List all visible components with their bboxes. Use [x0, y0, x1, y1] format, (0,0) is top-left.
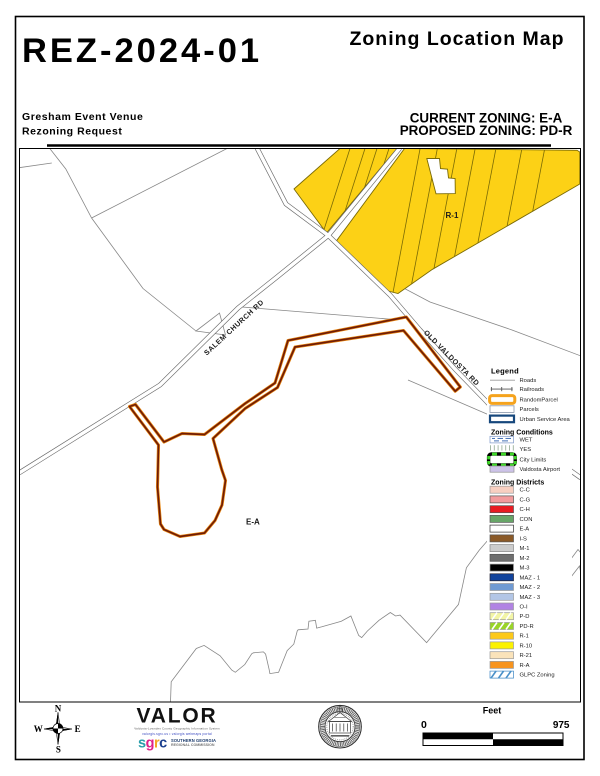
svg-text:MAZ - 2: MAZ - 2 — [520, 585, 541, 591]
svg-text:Zoning Location Map: Zoning Location Map — [349, 28, 564, 50]
svg-text:Valdosta-Lowndes County Geogra: Valdosta-Lowndes County Geographic Infor… — [134, 726, 220, 730]
svg-text:Feet: Feet — [483, 706, 502, 716]
svg-text:R-1: R-1 — [446, 211, 459, 220]
svg-text:O-I: O-I — [520, 605, 528, 611]
svg-text:Parcels: Parcels — [520, 407, 539, 413]
svg-text:C-C: C-C — [520, 488, 530, 494]
svg-text:E: E — [75, 724, 81, 734]
svg-text:RandomParcel: RandomParcel — [520, 398, 558, 404]
svg-text:YES: YES — [520, 447, 532, 453]
svg-text:W: W — [34, 724, 43, 734]
svg-text:City Limits: City Limits — [520, 458, 547, 464]
svg-text:R-21: R-21 — [520, 653, 533, 659]
svg-text:CON: CON — [520, 517, 533, 523]
svg-text:E-A: E-A — [520, 527, 530, 533]
svg-text:VALOR: VALOR — [137, 705, 218, 728]
svg-text:M-1: M-1 — [520, 546, 530, 552]
svg-text:Legend: Legend — [491, 367, 519, 376]
svg-text:Roads: Roads — [520, 378, 537, 384]
svg-text:Rezoning Request: Rezoning Request — [22, 126, 122, 138]
svg-text:Urban Service Area: Urban Service Area — [520, 417, 571, 423]
svg-text:sgrc: sgrc — [138, 736, 167, 752]
svg-text:PROPOSED ZONING: PD-R: PROPOSED ZONING: PD-R — [400, 123, 573, 138]
svg-text:E-A: E-A — [246, 518, 260, 527]
svg-text:GLPC Zoning: GLPC Zoning — [520, 673, 555, 679]
svg-text:N: N — [55, 704, 62, 714]
svg-text:P-D: P-D — [520, 614, 530, 620]
svg-text:Railroads: Railroads — [520, 387, 545, 393]
svg-text:M-2: M-2 — [520, 556, 530, 562]
svg-text:I-S: I-S — [520, 536, 528, 542]
svg-text:R-1: R-1 — [520, 634, 529, 640]
svg-text:C-H: C-H — [520, 507, 530, 513]
svg-text:M-3: M-3 — [520, 566, 530, 572]
svg-text:975: 975 — [553, 720, 570, 731]
svg-text:MAZ - 3: MAZ - 3 — [520, 595, 541, 601]
svg-text:R-A: R-A — [520, 663, 530, 669]
svg-text:Valdosta Airport: Valdosta Airport — [520, 467, 561, 473]
svg-text:MAZ - 1: MAZ - 1 — [520, 575, 541, 581]
svg-text:R-10: R-10 — [520, 643, 533, 649]
svg-text:S: S — [56, 745, 61, 755]
svg-text:Zoning Districts: Zoning Districts — [491, 479, 544, 486]
svg-text:WET: WET — [520, 438, 533, 444]
svg-text:Zoning Conditions: Zoning Conditions — [491, 429, 553, 436]
svg-text:0: 0 — [421, 719, 427, 731]
svg-text:REZ-2024-01: REZ-2024-01 — [22, 32, 262, 70]
svg-text:REGIONAL COMMISSION: REGIONAL COMMISSION — [171, 743, 215, 747]
svg-text:PD-R: PD-R — [520, 624, 534, 630]
svg-text:C-G: C-G — [520, 497, 531, 503]
svg-text:Gresham Event Venue: Gresham Event Venue — [22, 111, 143, 123]
